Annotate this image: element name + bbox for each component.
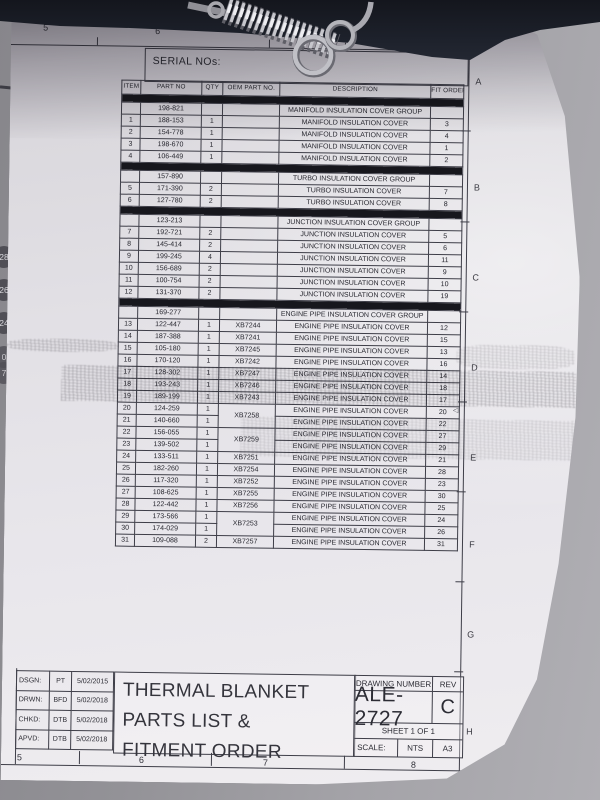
item-cell: 2 (121, 126, 140, 138)
part-cell: 127-780 (139, 194, 200, 207)
fit-cell: 10 (428, 278, 461, 290)
zone-tick (79, 751, 80, 764)
item-cell: 16 (118, 354, 137, 366)
part-cell: 122-447 (137, 318, 198, 331)
qty-cell: 1 (196, 499, 217, 511)
qty-cell: 2 (200, 183, 221, 195)
qty-cell (200, 215, 221, 227)
scale-value: NTS (398, 740, 433, 757)
oem-cell (221, 183, 278, 196)
oem-cell (221, 195, 278, 208)
part-cell: 156-055 (136, 426, 197, 439)
item-cell: 11 (119, 274, 138, 286)
qty-cell: 4 (199, 251, 220, 263)
qty-cell: 1 (201, 139, 222, 151)
qty-cell (199, 307, 220, 319)
fit-cell: 17 (426, 394, 459, 406)
qty-cell: 1 (197, 391, 218, 403)
oem-cell: XB7245 (219, 343, 276, 356)
part-cell: 198-670 (140, 138, 201, 151)
zone-tick (454, 671, 463, 672)
oem-cell: XB7242 (219, 355, 276, 368)
qty-cell: 2 (200, 227, 221, 239)
part-cell: 124-259 (136, 402, 197, 415)
fit-cell: 29 (426, 442, 459, 454)
oem-cell (221, 239, 278, 252)
drawing-title-box: THERMAL BLANKET PARTS LIST & FITMENT ORD… (113, 672, 356, 757)
fit-cell: 2 (430, 154, 463, 166)
drawing-number-value: ALE-2727 (354, 691, 432, 723)
qty-cell: 1 (197, 403, 218, 415)
signoff-date: 5/02/2018 (71, 691, 113, 711)
qty-cell: 1 (197, 439, 218, 451)
signoff-label: DSGN: (16, 671, 49, 691)
fit-cell: 22 (426, 418, 459, 430)
zone-letter: F (465, 539, 479, 549)
part-cell: 157-890 (139, 170, 200, 183)
part-cell: 133-511 (136, 450, 197, 463)
item-cell: 8 (120, 238, 139, 250)
oem-cell (222, 139, 279, 152)
oem-cell: XB7255 (217, 487, 274, 500)
oem-cell: XB7259 (218, 427, 275, 452)
drawing-number-block: DRAWING NUMBER REV ALE-2727 C SHEET 1 OF… (353, 675, 464, 759)
signoff-row: DRWN:BFD5/02/2018 (16, 690, 113, 711)
signoff-initials: DTB (49, 730, 71, 750)
item-cell: 19 (117, 390, 136, 402)
fit-cell: 5 (429, 230, 462, 242)
zone-tick (269, 40, 270, 48)
fit-cell: 28 (425, 466, 458, 478)
fit-cell: 21 (426, 454, 459, 466)
qty-cell: 1 (201, 127, 222, 139)
fit-cell: 19 (428, 290, 461, 302)
qty-cell: 1 (196, 475, 217, 487)
fit-cell: 7 (429, 186, 462, 198)
fit-cell: 23 (425, 478, 458, 490)
fit-cell (429, 218, 462, 230)
signoff-label: DRWN: (16, 690, 49, 710)
fit-cell: 31 (424, 538, 457, 550)
rev-value: C (432, 692, 462, 723)
fit-cell: 20 (426, 406, 459, 418)
signoff-date: 5/02/2018 (71, 730, 113, 750)
fit-cell: 1 (430, 142, 463, 154)
fit-cell (428, 310, 461, 322)
qty-cell: 1 (198, 319, 219, 331)
part-cell: 128-302 (137, 366, 198, 379)
signoff-label: CHKD: (16, 710, 49, 730)
qty-cell: 1 (197, 415, 218, 427)
item-cell: 27 (116, 486, 135, 498)
part-cell: 122-442 (135, 498, 196, 511)
fit-cell: 26 (425, 526, 458, 538)
item-cell (121, 102, 140, 114)
qty-cell: 1 (196, 511, 217, 523)
part-cell: 199-245 (138, 250, 199, 263)
part-cell: 182-260 (135, 462, 196, 475)
item-cell: 28 (116, 498, 135, 510)
part-cell: 173-566 (135, 510, 196, 523)
oem-cell (221, 215, 278, 228)
oem-cell: XB7243 (218, 391, 275, 404)
item-cell: 14 (118, 330, 137, 342)
item-cell: 3 (121, 138, 140, 150)
parts-list-table: ITEMPART NOQTYOEM PART NO.DESCRIPTIONFIT… (115, 80, 464, 552)
fit-cell: 12 (427, 322, 460, 334)
part-cell: 131-370 (138, 286, 199, 299)
item-cell: 29 (116, 510, 135, 522)
part-cell: 123-213 (139, 214, 200, 227)
column-header: PART NO (141, 80, 202, 95)
item-cell: 30 (116, 522, 135, 534)
oem-cell (220, 275, 277, 288)
zone-tick (344, 756, 345, 769)
item-cell: 26 (116, 474, 135, 486)
desc-cell: ENGINE PIPE INSULATION COVER (273, 536, 424, 550)
zone-tick (455, 581, 464, 582)
oem-cell: XB7247 (219, 367, 276, 380)
drawing-title-line: THERMAL BLANKET (123, 679, 355, 706)
fit-cell (429, 174, 462, 186)
item-cell: 15 (118, 342, 137, 354)
oem-cell (222, 151, 279, 164)
qty-cell: 1 (196, 463, 217, 475)
zone-tick (211, 753, 212, 766)
zone-tick (97, 37, 98, 45)
zone-number: 6 (139, 755, 144, 765)
item-cell: 31 (115, 534, 134, 546)
fit-cell (430, 106, 463, 118)
fit-cell: 8 (429, 198, 462, 210)
oem-cell: XB7252 (217, 475, 274, 488)
oem-cell (220, 287, 277, 300)
zone-number: 5 (17, 752, 22, 762)
fit-cell: 3 (430, 118, 463, 130)
item-cell: 23 (117, 438, 136, 450)
item-cell: 20 (117, 402, 136, 414)
part-cell: 140-660 (136, 414, 197, 427)
oem-cell (222, 116, 279, 129)
zone-tick (345, 43, 346, 51)
qty-cell: 1 (196, 523, 217, 535)
part-cell: 193-243 (137, 378, 198, 391)
zone-letter: G (464, 629, 478, 639)
oem-cell (220, 307, 277, 320)
part-cell: 117-320 (135, 474, 196, 487)
signoff-date: 5/02/2015 (71, 671, 113, 691)
part-cell: 187-388 (137, 330, 198, 343)
part-cell: 156-689 (138, 262, 199, 275)
zone-number: 8 (411, 760, 416, 770)
qty-cell: 1 (201, 151, 222, 163)
qty-cell: 1 (198, 355, 219, 367)
zone-letter: A (471, 76, 485, 86)
item-cell: 1 (121, 114, 140, 126)
qty-cell: 1 (198, 343, 219, 355)
item-cell: 9 (119, 250, 138, 262)
zone-letter: E (466, 452, 480, 462)
part-cell: 106-449 (140, 150, 201, 163)
zone-letter: H (462, 726, 476, 736)
fit-cell: 18 (427, 382, 460, 394)
fit-cell: 9 (428, 266, 461, 278)
zone-number: 7 (263, 758, 268, 768)
item-cell: 17 (118, 366, 137, 378)
qty-cell (201, 103, 222, 115)
rev-label: REV (433, 677, 463, 691)
fit-cell: 14 (427, 370, 460, 382)
signoff-row: CHKD:DTB5/02/2018 (16, 710, 113, 731)
column-header: OEM PART NO. (223, 82, 280, 97)
part-cell: 189-199 (136, 390, 197, 403)
oem-cell (221, 227, 278, 240)
paper-size: A3 (433, 740, 462, 757)
fit-cell: 4 (430, 130, 463, 142)
zone-letter: D (467, 362, 481, 372)
signoff-initials: BFD (49, 691, 71, 711)
oem-cell: XB7241 (219, 331, 276, 344)
oem-cell (220, 263, 277, 276)
signoff-row: DSGN:PT5/02/2015 (16, 671, 113, 692)
oem-cell (222, 128, 279, 141)
part-cell: 188-153 (140, 114, 201, 127)
item-cell: 7 (120, 226, 139, 238)
qty-cell: 2 (195, 535, 216, 547)
qty-cell (200, 171, 221, 183)
part-cell: 192-721 (139, 226, 200, 239)
qty-cell: 1 (201, 115, 222, 127)
fit-cell: 11 (428, 254, 461, 266)
photocopy-smudge (7, 338, 119, 353)
fit-cell: 6 (429, 242, 462, 254)
part-cell: 198-821 (140, 102, 201, 115)
item-cell: 6 (120, 194, 139, 206)
serial-numbers-label: SERIAL NOs: (153, 55, 221, 68)
oem-cell: XB7257 (216, 535, 273, 548)
item-cell: 13 (118, 318, 137, 330)
qty-cell: 2 (199, 275, 220, 287)
oem-cell: XB7246 (219, 379, 276, 392)
oem-cell: XB7254 (217, 463, 274, 476)
zone-letter: C (469, 272, 483, 282)
item-cell: 4 (121, 150, 140, 162)
photo-of-parts-list-document: { "sheet": { "serial_label": "SERIAL NOs… (0, 0, 600, 800)
qty-cell: 2 (199, 263, 220, 275)
qty-cell: 2 (200, 195, 221, 207)
item-cell: 21 (117, 414, 136, 426)
fit-cell: 24 (425, 514, 458, 526)
qty-cell: 1 (198, 367, 219, 379)
item-cell: 10 (119, 262, 138, 274)
column-header: ITEM (122, 80, 141, 94)
qty-cell: 2 (200, 239, 221, 251)
part-cell: 100-754 (138, 274, 199, 287)
paper-sheet: 568 ABCDEFGH ◁ SERIAL NOs: ITEMPART NOQT… (1, 8, 584, 788)
oem-cell (220, 251, 277, 264)
zone-letter: B (470, 182, 484, 192)
part-cell: 174-029 (135, 522, 196, 535)
signoff-label: APVD: (16, 729, 49, 749)
qty-cell: 1 (197, 451, 218, 463)
sheet-count-text: SHEET 1 OF 1 (354, 723, 462, 740)
part-cell: 171-390 (139, 182, 200, 195)
signoff-date: 5/02/2018 (71, 710, 113, 730)
item-cell: 12 (119, 286, 138, 298)
oem-cell: XB7253 (217, 511, 274, 536)
fit-cell: 13 (427, 346, 460, 358)
fit-cell: 27 (426, 430, 459, 442)
qty-cell: 1 (198, 379, 219, 391)
item-cell: 22 (117, 426, 136, 438)
signoff-initials: PT (49, 671, 71, 691)
oem-cell: XB7258 (218, 403, 275, 428)
oem-cell: XB7256 (217, 499, 274, 512)
part-cell: 105-180 (137, 342, 198, 355)
fit-cell: 30 (425, 490, 458, 502)
signoff-row: APVD:DTB5/02/2018 (16, 729, 113, 750)
scale-label: SCALE: (354, 739, 398, 757)
fit-cell: 15 (427, 334, 460, 346)
signoff-table: DSGN:PT5/02/2015DRWN:BFD5/02/2018CHKD:DT… (15, 670, 114, 750)
fit-cell: 16 (427, 358, 460, 370)
qty-cell: 1 (197, 427, 218, 439)
oem-cell (222, 104, 279, 117)
part-cell: 154-778 (140, 126, 201, 139)
item-cell (120, 214, 139, 226)
item-cell (120, 170, 139, 182)
part-cell: 109-088 (134, 534, 195, 547)
item-cell: 25 (116, 462, 135, 474)
item-cell: 24 (117, 450, 136, 462)
qty-cell: 2 (199, 287, 220, 299)
oem-cell: XB7244 (219, 319, 276, 332)
part-cell: 170-120 (137, 354, 198, 367)
qty-cell: 1 (196, 487, 217, 499)
part-cell: 145-414 (139, 238, 200, 251)
fit-cell: 25 (425, 502, 458, 514)
column-header: QTY (202, 81, 223, 95)
drawing-title-line: PARTS LIST & (122, 709, 354, 736)
item-cell (119, 306, 138, 318)
item-cell: 18 (118, 378, 137, 390)
oem-cell: XB7251 (218, 451, 275, 464)
part-cell: 139-502 (136, 438, 197, 451)
qty-cell: 1 (198, 331, 219, 343)
column-header: FIT ORDER (431, 84, 464, 98)
signoff-initials: DTB (49, 710, 71, 730)
item-cell: 5 (120, 182, 139, 194)
part-cell: 169-277 (138, 306, 199, 319)
part-cell: 108-625 (135, 486, 196, 499)
oem-cell (221, 171, 278, 184)
